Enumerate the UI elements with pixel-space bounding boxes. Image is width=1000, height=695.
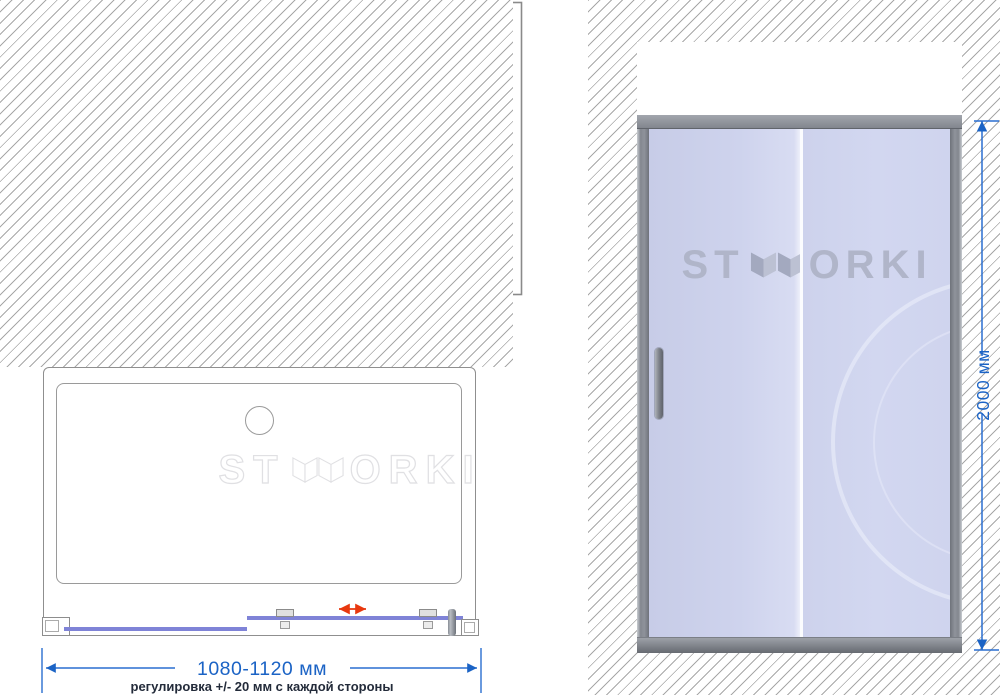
door-bottom-rail — [637, 637, 962, 653]
plan-watermark: ST ORKI — [145, 446, 555, 494]
plan-watermark-st: ST — [218, 450, 285, 490]
brand-w-icon — [750, 247, 804, 283]
brand-w-icon — [292, 453, 344, 487]
height-label: 2000 мм — [973, 349, 993, 420]
front-watermark-orki: ORKI — [809, 245, 933, 285]
front-watermark-st: ST — [681, 245, 744, 285]
front-watermark: ST ORKI — [672, 240, 942, 290]
door-glass-left-pane — [649, 128, 800, 637]
adjustment-note: регулировка +/- 20 мм с каждой стороны — [131, 679, 394, 694]
door-glass-right-pane — [803, 128, 950, 637]
plan-annotations: 1080-1120 мм регулировка +/- 20 мм с каж… — [0, 595, 513, 695]
glass-panel-divider — [800, 128, 803, 637]
width-range-label: 1080-1120 мм — [197, 658, 327, 680]
height-dimension: 2000 мм — [950, 100, 1000, 670]
door-top-rail — [637, 115, 962, 129]
plan-wall-hatch — [0, 0, 513, 367]
door-left-post — [637, 115, 649, 652]
plan-watermark-orki: ORKI — [350, 450, 482, 490]
door-handle — [655, 348, 663, 419]
product-diagram-sheet: 43,5 13,5 30 — [0, 0, 1000, 695]
drain-circle — [245, 406, 274, 435]
